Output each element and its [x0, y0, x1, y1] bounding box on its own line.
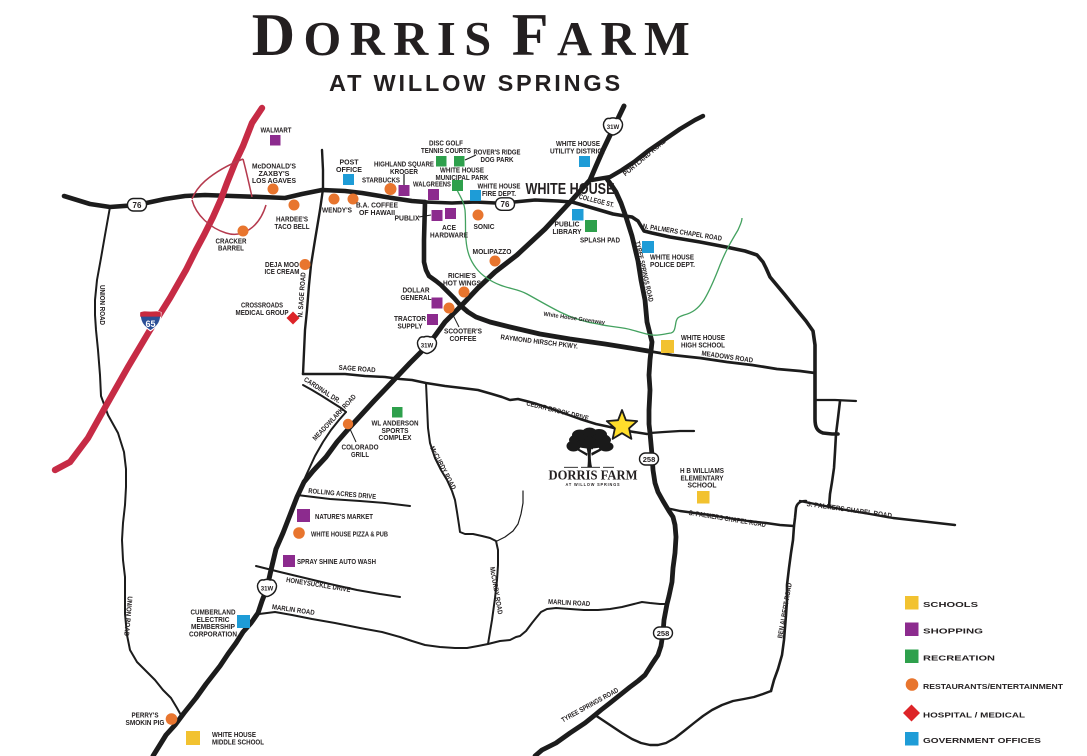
svg-text:31W: 31W [261, 586, 274, 593]
svg-text:SHOPPING: SHOPPING [923, 627, 983, 636]
svg-text:SCHOOLS: SCHOOLS [923, 600, 978, 609]
svg-text:SMOKIN PIG: SMOKIN PIG [126, 718, 165, 727]
svg-text:MUNICIPAL PARK: MUNICIPAL PARK [436, 173, 489, 182]
svg-text:SCHOOL: SCHOOL [688, 481, 717, 490]
svg-text:NATURE'S MARKET: NATURE'S MARKET [315, 512, 373, 521]
svg-text:COFFEE: COFFEE [450, 334, 477, 343]
svg-text:WALMART: WALMART [261, 126, 292, 135]
svg-text:31W: 31W [421, 343, 434, 350]
svg-text:OFFICE: OFFICE [336, 165, 362, 174]
svg-text:KROGER: KROGER [390, 167, 418, 176]
svg-text:LIBRARY: LIBRARY [553, 227, 582, 236]
svg-text:CORPORATION: CORPORATION [189, 629, 237, 638]
svg-text:UTILITY DISTRICT: UTILITY DISTRICT [550, 146, 606, 155]
svg-text:UNION ROAD: UNION ROAD [98, 285, 105, 325]
svg-text:RESTAURANTS/ENTERTAINMENT: RESTAURANTS/ENTERTAINMENT [923, 682, 1063, 691]
svg-text:SUPPLY: SUPPLY [398, 321, 423, 330]
svg-text:HOSPITAL / MEDICAL: HOSPITAL / MEDICAL [923, 711, 1025, 720]
svg-text:258: 258 [657, 629, 670, 638]
svg-text:MIDDLE SCHOOL: MIDDLE SCHOOL [212, 737, 264, 746]
svg-text:OF HAWAII: OF HAWAII [359, 208, 395, 217]
svg-text:HOT WINGS: HOT WINGS [443, 278, 481, 287]
svg-text:76: 76 [501, 200, 510, 209]
svg-text:GENERAL: GENERAL [401, 293, 432, 302]
svg-text:TENNIS COURTS: TENNIS COURTS [421, 146, 471, 155]
svg-text:PUBLIX: PUBLIX [395, 213, 420, 222]
svg-text:HARDWARE: HARDWARE [430, 230, 468, 239]
svg-text:ICE CREAM: ICE CREAM [265, 267, 300, 276]
svg-text:STARBUCKS: STARBUCKS [362, 176, 400, 185]
svg-text:SPRAY SHINE AUTO WASH: SPRAY SHINE AUTO WASH [297, 557, 376, 566]
svg-text:DORRIS FARM: DORRIS FARM [549, 468, 638, 483]
svg-text:SONIC: SONIC [474, 222, 495, 231]
svg-text:DOG PARK: DOG PARK [481, 155, 514, 164]
svg-text:GOVERNMENT OFFICES: GOVERNMENT OFFICES [923, 736, 1041, 745]
svg-text:SPLASH PAD: SPLASH PAD [580, 236, 620, 245]
svg-text:31W: 31W [607, 124, 620, 131]
svg-text:WHITE HOUSE PIZZA & PUB: WHITE HOUSE PIZZA & PUB [311, 530, 388, 539]
svg-text:AT WILLOW SPRINGS: AT WILLOW SPRINGS [566, 482, 621, 487]
svg-text:WENDY'S: WENDY'S [322, 206, 352, 215]
svg-text:AT WILLOW SPRINGS: AT WILLOW SPRINGS [329, 70, 623, 96]
svg-text:GRILL: GRILL [351, 450, 369, 459]
svg-text:HIGH SCHOOL: HIGH SCHOOL [681, 340, 725, 349]
svg-text:258: 258 [643, 455, 656, 464]
svg-text:FIRE DEPT.: FIRE DEPT. [482, 189, 516, 198]
svg-text:POLICE DEPT.: POLICE DEPT. [650, 260, 695, 269]
svg-text:COMPLEX: COMPLEX [379, 433, 412, 442]
svg-text:LOS AGAVES: LOS AGAVES [252, 176, 296, 185]
svg-text:65: 65 [145, 319, 155, 329]
svg-text:WHITE HOUSE: WHITE HOUSE [526, 181, 615, 198]
svg-text:TACO BELL: TACO BELL [275, 222, 310, 231]
svg-text:76: 76 [133, 201, 142, 210]
svg-text:MOLIPAZZO: MOLIPAZZO [473, 247, 512, 256]
svg-text:MEDICAL GROUP: MEDICAL GROUP [236, 308, 289, 317]
svg-text:BARREL: BARREL [218, 244, 244, 253]
svg-text:RECREATION: RECREATION [923, 654, 995, 663]
